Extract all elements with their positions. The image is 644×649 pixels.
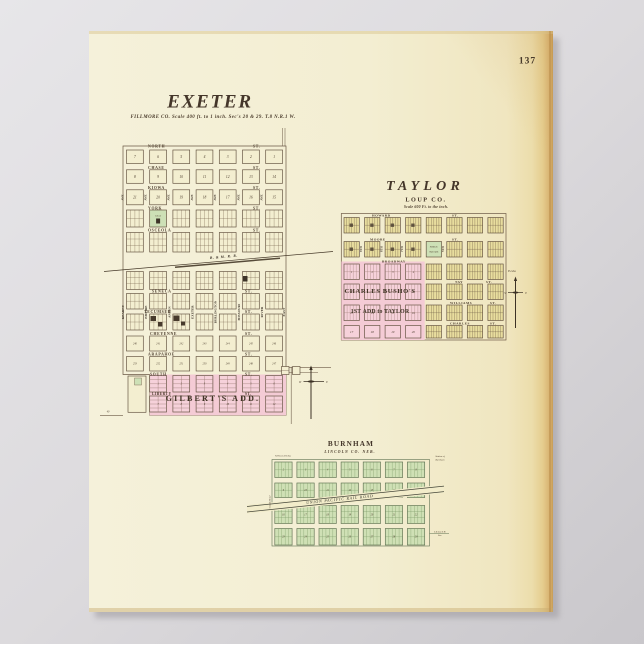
svg-text:BURNHAM: BURNHAM bbox=[328, 440, 374, 448]
svg-text:MOORE: MOORE bbox=[370, 237, 386, 241]
svg-text:21: 21 bbox=[133, 196, 137, 200]
svg-text:Scale 600 Ft. to the inch.: Scale 600 Ft. to the inch. bbox=[404, 205, 448, 209]
svg-text:RIVER: RIVER bbox=[260, 306, 264, 317]
svg-text:SOUTH: SOUTH bbox=[150, 372, 167, 376]
svg-text:HOWARD: HOWARD bbox=[372, 213, 391, 217]
svg-text:YORK: YORK bbox=[148, 206, 162, 210]
svg-text:LIBERTY: LIBERTY bbox=[152, 392, 172, 396]
svg-text:20: 20 bbox=[156, 196, 160, 200]
svg-text:BROADWAY: BROADWAY bbox=[382, 260, 406, 264]
svg-text:5: 5 bbox=[180, 155, 182, 159]
svg-text:LINCOLN CO. NEB.: LINCOLN CO. NEB. bbox=[323, 450, 375, 454]
svg-text:TAY: TAY bbox=[455, 280, 463, 284]
svg-text:ST.: ST. bbox=[245, 332, 252, 336]
svg-text:N.W.Cor.S.W.Sec: N.W.Cor.S.W.Sec bbox=[274, 455, 292, 458]
svg-text:E: E bbox=[325, 381, 328, 384]
svg-text:MISSOURI: MISSOURI bbox=[237, 303, 241, 320]
svg-text:5TH: 5TH bbox=[442, 246, 445, 252]
svg-text:8TH: 8TH bbox=[381, 246, 384, 252]
svg-text:ST.: ST. bbox=[253, 145, 260, 149]
svg-text:FILLMORE CO. Scale 400 ft. to: FILLMORE CO. Scale 400 ft. to 1 inch. Se… bbox=[131, 115, 296, 120]
svg-text:7: 7 bbox=[134, 155, 136, 159]
svg-text:ST.: ST. bbox=[452, 237, 458, 241]
svg-text:AVE: AVE bbox=[190, 195, 194, 201]
svg-text:CHASE: CHASE bbox=[148, 166, 165, 170]
svg-text:ST.: ST. bbox=[490, 321, 496, 325]
svg-text:AVE: AVE bbox=[260, 195, 264, 201]
svg-text:ARAPAHOE: ARAPAHOE bbox=[148, 353, 175, 357]
svg-text:County Road: County Road bbox=[269, 495, 272, 508]
svg-text:ST.: ST. bbox=[245, 353, 252, 357]
svg-text:20: 20 bbox=[412, 330, 416, 334]
svg-text:CHEYENNE: CHEYENNE bbox=[150, 332, 177, 336]
svg-text:AVE: AVE bbox=[236, 195, 240, 201]
svg-text:15: 15 bbox=[272, 196, 276, 200]
svg-text:KEARNY: KEARNY bbox=[121, 304, 125, 319]
svg-text:E: E bbox=[524, 292, 527, 295]
svg-text:137: 137 bbox=[519, 57, 536, 67]
svg-text:18: 18 bbox=[371, 330, 375, 334]
svg-text:AVE: AVE bbox=[167, 195, 171, 201]
svg-text:1ST ADD to TAYLOR: 1ST ADD to TAYLOR bbox=[351, 309, 410, 315]
svg-text:AVE: AVE bbox=[213, 195, 217, 201]
svg-text:9: 9 bbox=[157, 175, 159, 179]
svg-text:7TH: 7TH bbox=[401, 246, 404, 252]
svg-text:WILLIAMS: WILLIAMS bbox=[450, 301, 472, 305]
svg-text:EXETER: EXETER bbox=[191, 305, 195, 319]
svg-text:17: 17 bbox=[226, 196, 230, 200]
svg-text:NORTH: NORTH bbox=[148, 145, 165, 149]
svg-text:ST.: ST. bbox=[253, 206, 260, 210]
svg-text:8: 8 bbox=[134, 175, 136, 179]
svg-text:BURLINGTON: BURLINGTON bbox=[214, 300, 218, 323]
svg-text:KIOWA: KIOWA bbox=[148, 186, 165, 190]
svg-text:TAYLOR: TAYLOR bbox=[386, 179, 464, 194]
svg-text:19: 19 bbox=[391, 330, 395, 334]
svg-text:Burnham: Burnham bbox=[436, 458, 445, 461]
svg-text:4: 4 bbox=[204, 155, 206, 159]
svg-text:1: 1 bbox=[273, 155, 275, 159]
svg-text:CHARLES: CHARLES bbox=[450, 321, 470, 325]
svg-text:ST.: ST. bbox=[486, 280, 492, 284]
svg-text:18: 18 bbox=[203, 196, 207, 200]
svg-text:SQUARE: SQUARE bbox=[429, 251, 439, 254]
svg-text:AVE: AVE bbox=[144, 195, 148, 201]
svg-text:OSCEOLA: OSCEOLA bbox=[148, 229, 171, 233]
svg-text:CHARLES BUSHO'S: CHARLES BUSHO'S bbox=[344, 288, 415, 295]
svg-text:ST.: ST. bbox=[253, 229, 260, 233]
svg-text:TECUMSEH: TECUMSEH bbox=[144, 310, 171, 314]
svg-text:10: 10 bbox=[180, 175, 184, 179]
svg-text:2: 2 bbox=[250, 155, 252, 159]
svg-text:PUBLIC: PUBLIC bbox=[430, 247, 439, 249]
svg-text:6: 6 bbox=[157, 155, 159, 159]
svg-text:ST.: ST. bbox=[245, 290, 252, 294]
svg-text:AVE: AVE bbox=[120, 195, 124, 201]
svg-text:School: School bbox=[155, 216, 161, 218]
svg-text:9TH: 9TH bbox=[360, 246, 363, 252]
svg-text:16: 16 bbox=[249, 196, 253, 200]
svg-text:SENECA: SENECA bbox=[152, 290, 172, 294]
svg-text:ST.: ST. bbox=[452, 213, 458, 217]
svg-text:ST.: ST. bbox=[245, 310, 252, 314]
svg-text:Sec.: Sec. bbox=[438, 534, 442, 537]
svg-text:17: 17 bbox=[350, 330, 354, 334]
svg-text:LOUP CO.: LOUP CO. bbox=[405, 197, 446, 204]
svg-text:3: 3 bbox=[227, 155, 229, 159]
svg-text:11: 11 bbox=[203, 175, 207, 179]
svg-text:12: 12 bbox=[226, 175, 230, 179]
svg-text:EXETER: EXETER bbox=[166, 92, 253, 113]
svg-text:ST.: ST. bbox=[490, 301, 496, 305]
svg-text:14: 14 bbox=[272, 175, 276, 179]
svg-text:ST.: ST. bbox=[245, 372, 252, 376]
svg-text:ST.: ST. bbox=[253, 186, 260, 190]
svg-text:13: 13 bbox=[249, 175, 253, 179]
svg-text:19: 19 bbox=[180, 196, 184, 200]
svg-text:ST.: ST. bbox=[253, 166, 260, 170]
svg-text:ST.: ST. bbox=[245, 392, 252, 396]
svg-text:Ezda: Ezda bbox=[507, 269, 516, 273]
